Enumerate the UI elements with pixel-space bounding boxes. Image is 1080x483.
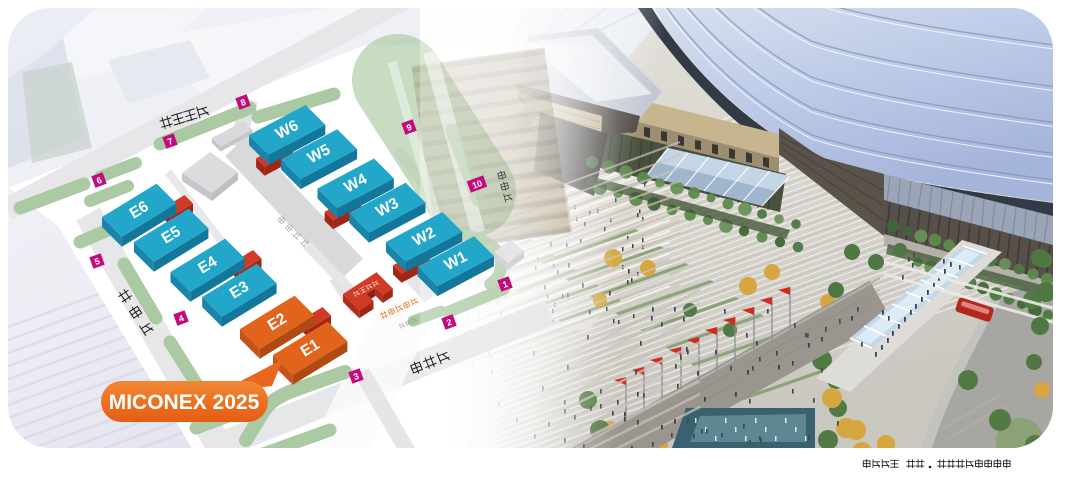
svg-text:MICONEX 2025: MICONEX 2025 xyxy=(109,391,260,414)
